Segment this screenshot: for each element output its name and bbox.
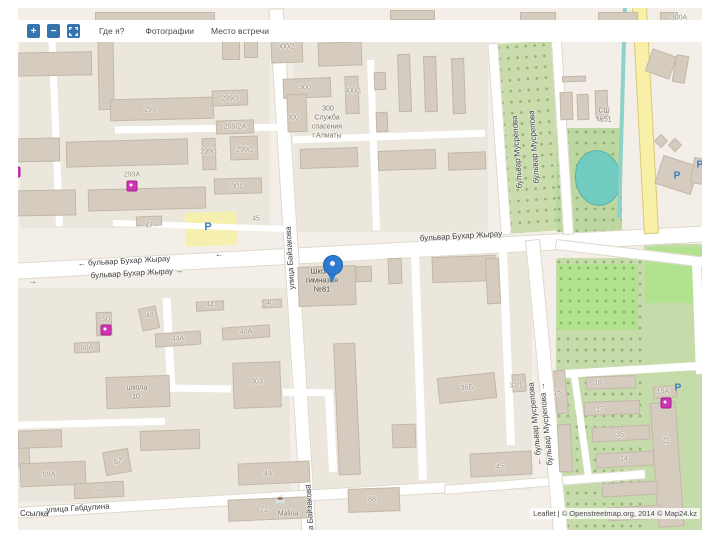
num-label: 57	[114, 458, 123, 466]
map-attribution: Leaflet | © Openstreetmap.org, 2014 © Ma…	[530, 508, 700, 519]
toolbar-link-photos[interactable]: Фотографии	[145, 26, 194, 36]
shop-icon	[661, 398, 672, 409]
num-label: 300	[287, 115, 299, 122]
parking-icon: P	[674, 171, 681, 182]
num-label: 45	[252, 216, 260, 223]
num-label: 50	[102, 317, 110, 324]
direction-arrow: →	[29, 276, 37, 285]
poi-label-school-10: школа	[127, 385, 147, 392]
poi-label-rescue-service: Служба	[314, 115, 339, 122]
num-label: 299/1	[200, 149, 218, 156]
building	[560, 92, 574, 120]
num-label: 17	[596, 407, 604, 414]
map-application-window: ← бульвар Бухар Жыраубульвар Бухар Жырау…	[0, 0, 720, 540]
building	[557, 424, 573, 473]
num-label: 18	[594, 380, 602, 387]
map-toolbar: + − Где я? Фотографии Место встречи	[18, 20, 702, 42]
fullscreen-button[interactable]	[67, 24, 80, 38]
num-label: 299/3	[221, 96, 239, 103]
num-label: 15А	[657, 389, 669, 396]
num-label: 299/2	[236, 147, 254, 154]
num-label: 72	[260, 507, 268, 514]
building	[602, 481, 659, 498]
building	[110, 97, 215, 122]
building	[654, 134, 668, 148]
poi-label-school-51: №51	[596, 117, 611, 124]
building	[392, 424, 417, 449]
building	[286, 94, 307, 133]
num-label: 300	[299, 85, 311, 92]
num-label: 299	[144, 107, 156, 114]
toolbar-link-where-am-i[interactable]: Где я?	[99, 26, 124, 36]
num-label: 301	[231, 184, 243, 191]
building	[318, 41, 363, 67]
num-label: 45	[496, 464, 504, 471]
num-label: 59	[94, 486, 102, 493]
lawn	[558, 264, 638, 330]
num-label: 40А	[240, 328, 253, 336]
num-label: 40	[266, 300, 274, 307]
building	[378, 149, 437, 171]
num-label: 68	[368, 497, 376, 504]
building	[374, 72, 387, 90]
building	[228, 496, 311, 522]
num-label: 300/2	[277, 44, 295, 51]
parking-icon: P	[675, 383, 682, 394]
building	[376, 112, 389, 132]
num-label: 59А	[43, 471, 56, 478]
building	[584, 400, 640, 416]
direction-arrow: →	[300, 483, 310, 492]
page-frame-top	[0, 0, 720, 8]
building	[485, 258, 501, 305]
building	[423, 56, 438, 112]
num-label: 299/2А	[224, 124, 246, 131]
num-label: 44	[206, 302, 214, 309]
num-label: 299А	[124, 172, 140, 179]
poi-label-rescue-service: г.Алматы	[312, 133, 341, 140]
cafe-icon: ☕	[275, 495, 286, 506]
page-frame-left	[0, 0, 18, 540]
building	[356, 266, 373, 283]
building	[390, 10, 435, 20]
zoom-out-button[interactable]: −	[47, 24, 60, 38]
building	[448, 151, 487, 170]
toolbar-link-meeting-place[interactable]: Место встречи	[211, 26, 269, 36]
poi-label-school-51: СШ	[598, 108, 609, 115]
page-frame-bottom	[0, 530, 720, 540]
fullscreen-icon	[69, 27, 78, 36]
shop-icon	[101, 325, 112, 336]
building	[451, 58, 466, 114]
poi-label-school-10: 10	[132, 394, 140, 401]
building	[344, 76, 359, 114]
num-label: 32/1	[509, 383, 523, 390]
building	[66, 138, 189, 167]
poi-label-rescue-service: спасения	[312, 124, 342, 131]
num-label: 35	[616, 432, 624, 439]
building	[300, 147, 359, 169]
building	[88, 186, 207, 211]
num-label: 50А	[81, 344, 94, 352]
building	[8, 51, 92, 76]
poi-label-malina: Malina	[278, 511, 299, 518]
building	[577, 94, 590, 120]
parking-icon: P	[204, 221, 211, 233]
building	[397, 54, 412, 112]
num-label: 49	[264, 470, 272, 477]
building	[562, 76, 586, 83]
num-label: 47	[145, 223, 153, 230]
poi-label-rescue-service: 300	[322, 106, 334, 113]
shop-icon	[127, 181, 138, 192]
direction-arrow: ←	[215, 249, 223, 258]
pin-head	[323, 255, 343, 275]
map-canvas[interactable]: ← бульвар Бухар Жыраубульвар Бухар Жырау…	[0, 0, 720, 540]
building	[388, 258, 403, 284]
road	[283, 389, 331, 397]
share-link[interactable]: Ссылка	[20, 509, 48, 518]
num-label: 303	[251, 379, 263, 386]
num-label: 16	[553, 390, 561, 397]
building	[140, 429, 201, 451]
zoom-in-button[interactable]: +	[27, 24, 40, 38]
page-frame-right	[702, 0, 720, 540]
road	[167, 384, 231, 392]
num-label: 44А	[172, 335, 185, 343]
num-label: 300/1	[344, 88, 362, 95]
building	[18, 429, 63, 449]
building	[238, 460, 311, 485]
num-label: 36Б	[460, 384, 473, 392]
num-label: 14	[620, 456, 628, 463]
pin-hole	[330, 261, 335, 266]
building	[668, 138, 682, 152]
building	[105, 375, 170, 409]
